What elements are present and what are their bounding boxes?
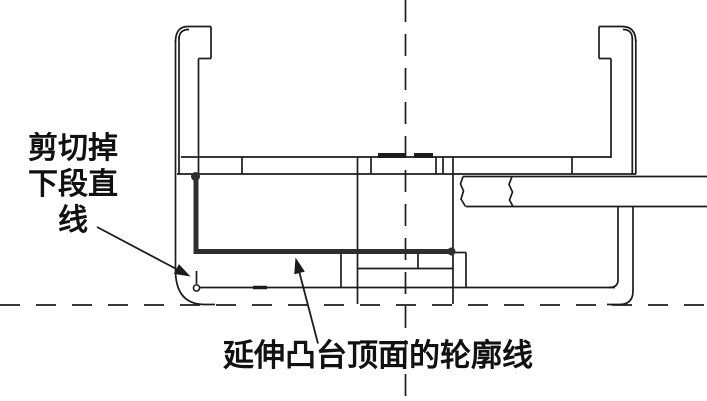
leader-arrow-shaft-2: [300, 273, 318, 344]
leader-arrow-head-2: [294, 258, 305, 275]
label-cut-lower-line-row3: 线: [14, 203, 132, 239]
highlight-contour-line: [196, 177, 452, 252]
vertex-circle-marker: [193, 285, 199, 291]
label-cut-lower-line-row2: 下段直: [14, 167, 132, 203]
highlight-endpoint-dot: [448, 248, 456, 256]
part-outline-path: [607, 207, 633, 305]
part-outline-path: [623, 30, 632, 40]
part-outline-path: [509, 177, 513, 207]
part-outline-path: [176, 27, 189, 43]
label-cut-lower-line-row1: 剪切掉: [14, 131, 132, 167]
part-outline-path: [609, 207, 618, 288]
part-outline-path: [461, 177, 466, 207]
part-outline-path: [179, 30, 189, 40]
cad-screenshot: 剪切掉 下段直 线 延伸凸台顶面的轮廓线: [0, 0, 707, 401]
label-cut-lower-line: 剪切掉 下段直 线: [14, 131, 132, 239]
label-extend-boss-top-contour: 延伸凸台顶面的轮廓线: [223, 338, 533, 374]
highlight-endpoint-dot: [191, 172, 200, 181]
